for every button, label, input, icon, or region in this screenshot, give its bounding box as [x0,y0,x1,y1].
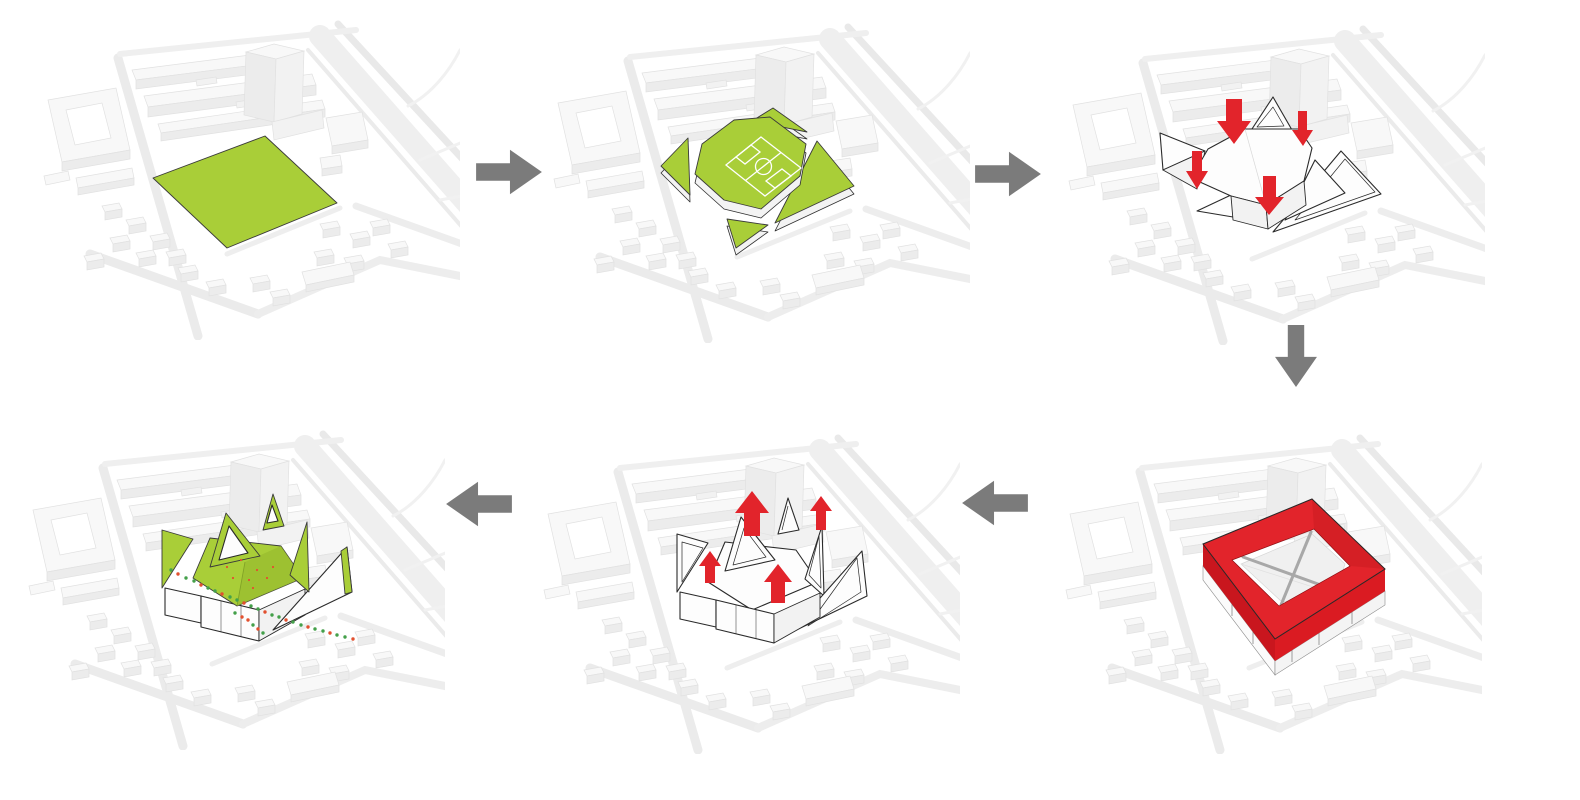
green-site-parcel [153,136,337,248]
step-3-white-folded-plates-pressed-down [1045,15,1485,345]
arrow-down-icon [1266,325,1326,387]
west-sail [162,530,193,588]
podium-front-wall [201,596,259,641]
step-2-site-plates-football-field [530,13,970,343]
step-4-red-frame-volume [1042,424,1482,754]
flow-arrow-step1-to-step2 [476,142,542,202]
flow-arrow-step3-to-step4 [1265,322,1327,390]
flow-arrow-step5-to-step6 [446,474,512,534]
podium-front-wall [716,600,774,643]
step-3-illustration [1045,15,1485,345]
step-1-green-site-area [20,10,460,340]
arrow-right-icon [476,142,542,202]
step-4-illustration [1042,424,1482,754]
step-6-green-folded-roofscape [5,420,445,750]
arrow-right-icon [975,144,1041,204]
flow-arrow-step4-to-step5 [962,473,1028,533]
step-6-illustration [5,420,445,750]
concept-diagram-canvas [0,0,1580,800]
step-5-roof-plates-lifted-up [520,424,960,754]
arrow-left-icon [446,474,512,534]
step-5-illustration [520,424,960,754]
arrow-left-icon [962,473,1028,533]
flow-arrow-step2-to-step3 [975,144,1041,204]
step-1-illustration [20,10,460,340]
step-2-illustration [530,13,970,343]
